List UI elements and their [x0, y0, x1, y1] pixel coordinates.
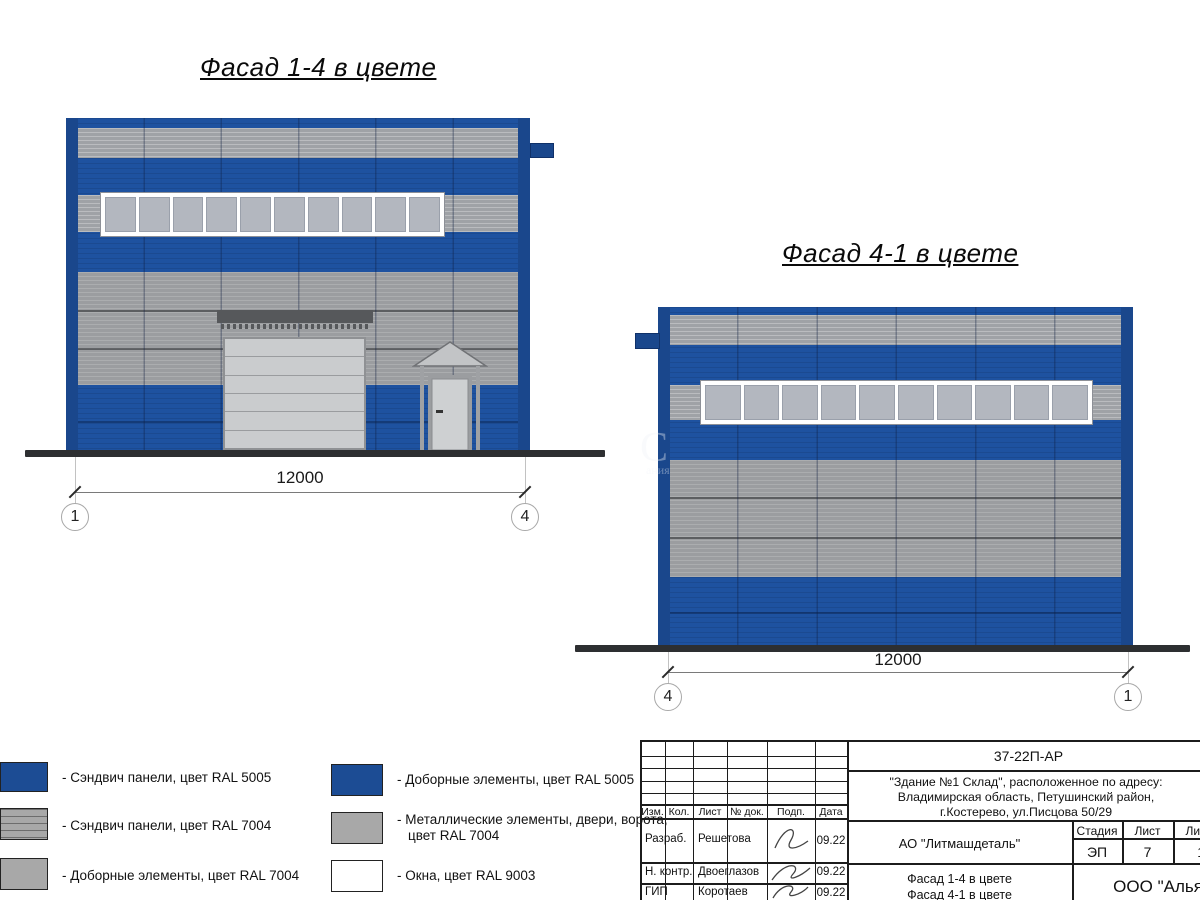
stamp-border	[640, 740, 642, 900]
stamp-stage-value: ЭП	[1072, 844, 1122, 860]
window-pane	[898, 385, 934, 420]
legend-label: - Доборные элементы, цвет RAL 5005	[397, 772, 658, 788]
gate-panel	[225, 430, 364, 448]
signature-razrab	[775, 830, 808, 848]
stamp-sheets-label: Листов	[1173, 824, 1200, 838]
stamp-line	[847, 863, 1200, 865]
stamp-date: 09.22	[815, 835, 847, 847]
window-pane	[975, 385, 1011, 420]
stamp-name: Коротаев	[698, 886, 748, 898]
legend-label: - Доборные элементы, цвет RAL 7004	[62, 868, 333, 884]
canopy-gable	[414, 342, 486, 366]
legend-swatch-white-windows	[331, 860, 383, 892]
stamp-col-doc: № док.	[727, 806, 767, 818]
window-pane	[173, 197, 204, 232]
stamp-sheets-value: 14	[1173, 844, 1200, 860]
stamp-col-data: Дата	[815, 806, 847, 818]
signature-gip	[773, 886, 808, 898]
stamp-sheet-label: Лист	[1122, 824, 1173, 838]
stamp-client: АО "Литмашдеталь"	[847, 836, 1072, 851]
door-leaf	[432, 379, 468, 450]
stamp-name: Решетова	[698, 833, 751, 845]
gate-panel	[225, 339, 364, 356]
gate-lintel-serration	[221, 324, 369, 329]
window-pane	[859, 385, 895, 420]
stamp-line	[847, 820, 1200, 822]
entrance-door-with-canopy	[412, 338, 488, 450]
stamp-border	[640, 740, 1200, 742]
stamp-address-line1: "Здание №1 Склад", расположенное по адре…	[847, 775, 1200, 790]
ribbon-window	[100, 192, 445, 237]
facade-1-4-title: Фасад 1-4 в цвете	[200, 52, 436, 83]
stamp-col-podp: Подп.	[767, 806, 815, 818]
window-pane	[105, 197, 136, 232]
stamp-line	[640, 883, 847, 885]
stamp-drawing-title-line1: Фасад 1-4 в цвете	[847, 872, 1072, 886]
corner-trim-right	[1121, 307, 1133, 645]
dimension-line	[668, 672, 1128, 673]
facade-1-4-drawing	[66, 118, 530, 450]
stamp-line	[640, 756, 847, 757]
window-pane	[782, 385, 818, 420]
legend-swatch-blue-trim	[331, 764, 383, 796]
legend-label: - Сэндвич панели, цвет RAL 7004	[62, 818, 323, 834]
legend-label: - Окна, цвет RAL 9003	[397, 868, 658, 884]
window-pane	[139, 197, 170, 232]
vertical-panel-joints	[658, 307, 1133, 645]
gate-panel	[225, 356, 364, 374]
window-pane	[206, 197, 237, 232]
signature-nkontr	[772, 866, 810, 880]
window-pane	[274, 197, 305, 232]
axis-bubble-4: 4	[511, 503, 539, 531]
stamp-date: 09.22	[815, 866, 847, 878]
corner-trim-right	[518, 118, 530, 450]
stamp-organization: ООО "Альянс	[1072, 877, 1200, 897]
legend-swatch-blue-sandwich	[0, 762, 48, 792]
window-pane	[375, 197, 406, 232]
legend-swatch-gray-trim	[0, 858, 48, 890]
stamp-line	[693, 740, 694, 900]
window-pane	[342, 197, 373, 232]
window-pane	[308, 197, 339, 232]
stamp-col-kol: Кол.	[665, 806, 693, 818]
gate-panel	[225, 411, 364, 429]
wall-outlet-pipe	[530, 143, 554, 158]
stamp-line	[640, 768, 847, 769]
legend-swatch-gray-metal	[331, 812, 383, 844]
door-handle	[436, 410, 443, 413]
window-pane	[744, 385, 780, 420]
facade-4-1-title: Фасад 4-1 в цвете	[782, 238, 1018, 269]
window-pane	[937, 385, 973, 420]
ground-line	[25, 450, 605, 457]
signatures	[767, 818, 815, 900]
stamp-drawing-title-line2: Фасад 4-1 в цвете	[847, 888, 1072, 900]
dimension-value: 12000	[848, 650, 948, 670]
sectional-gate	[223, 337, 366, 450]
stamp-stage-label: Стадия	[1072, 824, 1122, 838]
watermark-text: ания	[646, 463, 670, 478]
stamp-col-izm: Изм.	[640, 806, 665, 818]
stamp-role: Н. контр.	[645, 866, 692, 878]
canopy-post	[420, 366, 424, 450]
gate-panel	[225, 393, 364, 411]
stamp-line	[640, 781, 847, 782]
wall-outlet-pipe	[635, 333, 660, 349]
gate-panel	[225, 375, 364, 393]
window-pane	[409, 197, 440, 232]
legend-swatch-gray-sandwich	[0, 808, 48, 840]
axis-bubble-1: 1	[61, 503, 89, 531]
stamp-role: ГИП	[645, 886, 668, 898]
legend-label: - Сэндвич панели, цвет RAL 5005	[62, 770, 323, 786]
canopy-post	[476, 366, 480, 450]
drawing-sheet: Фасад 1-4 в цвете	[0, 0, 1200, 900]
stamp-line	[640, 862, 847, 864]
window-pane	[705, 385, 741, 420]
stamp-line	[640, 793, 847, 794]
stamp-address-line3: г.Костерево, ул.Писцова 50/29	[847, 805, 1200, 820]
stamp-line	[847, 770, 1200, 772]
window-pane	[240, 197, 271, 232]
axis-bubble-4: 4	[654, 683, 682, 711]
window-pane	[1014, 385, 1050, 420]
stamp-line	[1072, 838, 1200, 840]
gate-lintel	[217, 310, 373, 323]
stamp-sheet-value: 7	[1122, 844, 1173, 860]
window-pane	[821, 385, 857, 420]
stamp-role: Разраб.	[645, 833, 686, 845]
window-pane	[1052, 385, 1088, 420]
corner-trim-left	[66, 118, 78, 450]
dimension-line	[75, 492, 525, 493]
facade-4-1-drawing	[658, 307, 1133, 645]
axis-bubble-1: 1	[1114, 683, 1142, 711]
stamp-doc-number: 37-22П-АР	[847, 748, 1200, 764]
stamp-line	[640, 818, 847, 820]
stamp-name: Двоеглазов	[698, 866, 759, 878]
stamp-col-list: Лист	[693, 806, 727, 818]
stamp-date: 09.22	[815, 887, 847, 899]
ribbon-window	[700, 380, 1093, 425]
dimension-value: 12000	[250, 468, 350, 488]
stamp-address-line2: Владимирская область, Петушинский район,	[847, 790, 1200, 805]
